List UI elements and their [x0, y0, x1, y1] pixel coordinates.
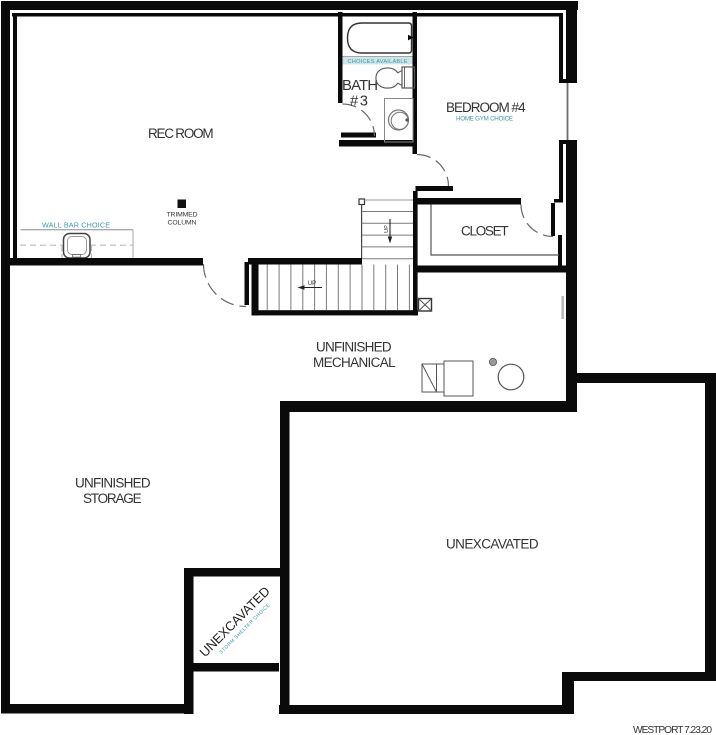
svg-text:UNFINISHED: UNFINISHED — [316, 340, 392, 355]
svg-text:COLUMN: COLUMN — [168, 220, 197, 227]
svg-text:CHOICES AVAILABLE: CHOICES AVAILABLE — [348, 59, 408, 65]
svg-text:CLOSET: CLOSET — [461, 224, 509, 239]
svg-text:#3: #3 — [350, 94, 368, 110]
svg-text:HOME GYM CHOICE: HOME GYM CHOICE — [456, 116, 513, 123]
svg-text:UNEXCAVATED: UNEXCAVATED — [446, 537, 539, 552]
svg-text:BATH: BATH — [342, 78, 378, 94]
svg-text:UNFINISHED: UNFINISHED — [75, 476, 151, 491]
svg-text:REC ROOM: REC ROOM — [148, 126, 214, 141]
svg-text:TRIMMED: TRIMMED — [167, 212, 198, 219]
svg-text:UP: UP — [308, 281, 316, 287]
svg-text:STORAGE: STORAGE — [83, 491, 142, 506]
svg-text:WESTPORT 7.23.20: WESTPORT 7.23.20 — [633, 725, 712, 735]
svg-text:UP: UP — [384, 225, 390, 233]
svg-text:BEDROOM #4: BEDROOM #4 — [446, 100, 526, 115]
svg-text:MECHANICAL: MECHANICAL — [313, 355, 396, 370]
svg-text:WALL BAR CHOICE: WALL BAR CHOICE — [42, 221, 110, 230]
